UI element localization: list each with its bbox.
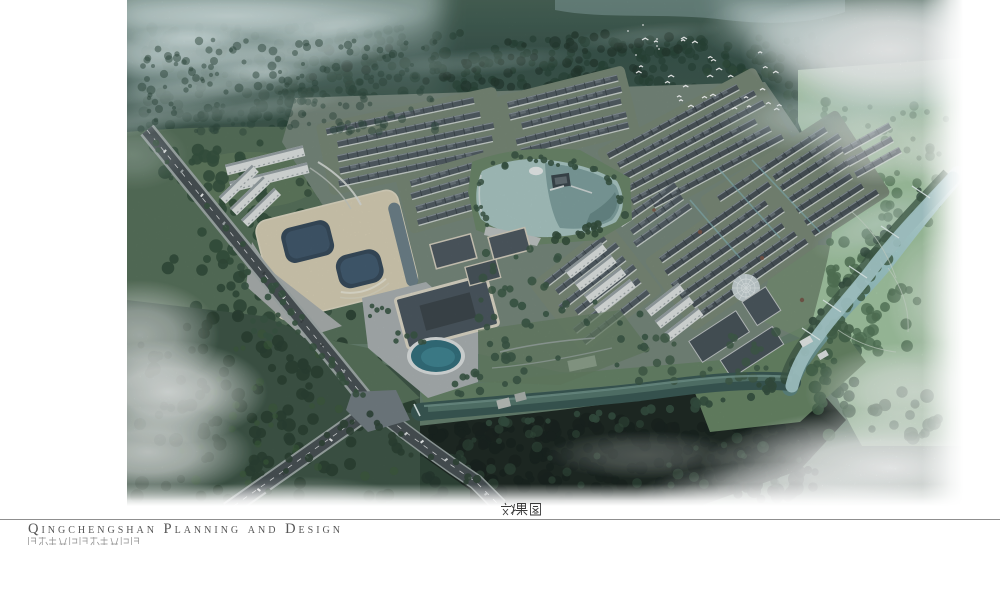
svg-text:Qingchengshan Planning and Des: Qingchengshan Planning and Design	[28, 521, 343, 537]
